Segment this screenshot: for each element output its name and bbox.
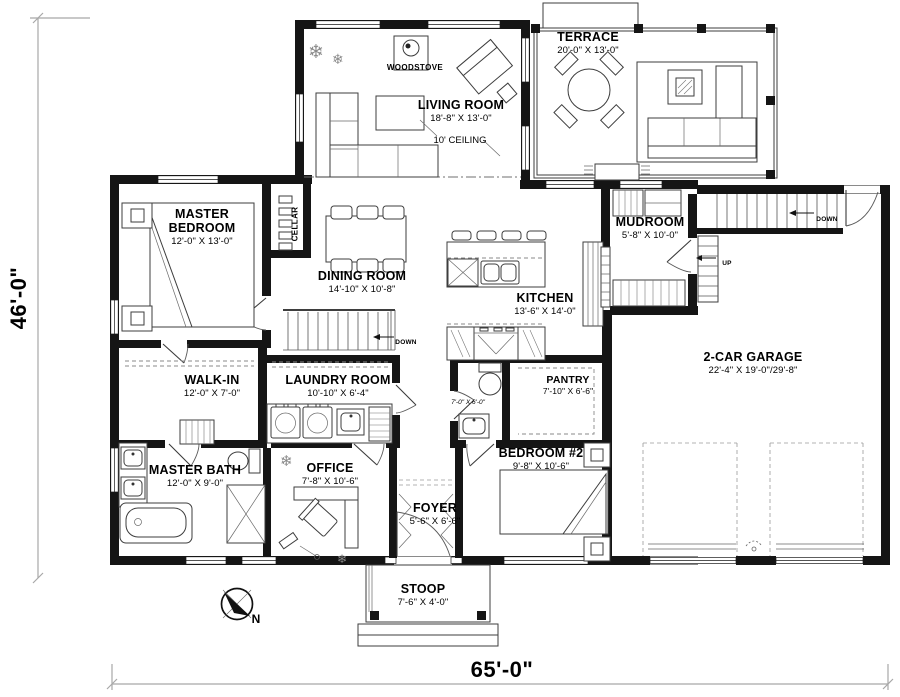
chimney (543, 3, 638, 28)
bath-sink (121, 477, 145, 499)
laundry-hatch (369, 407, 390, 441)
room-dims: 14'-10" X 10'-8" (318, 285, 406, 295)
office-furniture (279, 487, 358, 560)
room-name: FOYER (410, 502, 461, 516)
garage-side-door (846, 190, 878, 226)
label-down-garage: DOWN (816, 208, 837, 225)
room-dims: 12'-0" X 13'-0" (146, 237, 258, 247)
label-powder-room: 7'-0" X 6'-0" (451, 391, 485, 408)
room-dims: 13'-6" X 14'-0" (514, 307, 576, 317)
label-pantry: PANTRY 7'-10" X 6'-6" (543, 375, 593, 397)
coffee-table (376, 96, 424, 130)
room-dims: 7'-0" X 6'-0" (451, 399, 485, 406)
basement-stairs (283, 310, 395, 350)
tall-cabinets (583, 242, 603, 326)
room-dims: 7'-8" X 10'-6" (302, 477, 358, 487)
label-woodstove: WOODSTOVE (387, 64, 443, 73)
label-master-bedroom: MASTER BEDROOM 12'-0" X 13'-0" (146, 208, 258, 247)
foyer-opening-dashes (399, 480, 453, 485)
room-dims: 20'-0" X 13'-0" (557, 46, 619, 56)
laundry-door (396, 385, 416, 413)
terrace-furniture (554, 52, 757, 180)
mudroom-garage-door (667, 240, 691, 272)
range-counter (447, 324, 545, 360)
down-arrow (373, 334, 380, 340)
label-stoop: STOOP 7'-6" X 4'-0" (398, 583, 449, 608)
room-dims: 5'-8" X 10'-0" (616, 231, 685, 241)
label-ceiling-note: 10' CEILING (433, 130, 486, 147)
label-garage: 2-CAR GARAGE 22'-4" X 19'-0"/29'-8" (704, 351, 803, 376)
mudroom-up-stairs (696, 236, 718, 302)
down-arrow (789, 210, 796, 216)
label-living-room: LIVING ROOM 18'-8" X 13'-0" (418, 99, 504, 124)
room-name: CELLAR (292, 207, 301, 242)
laundry-sink (337, 409, 364, 435)
room-name: PANTRY (543, 375, 593, 386)
room-dims: 12'-0" X 7'-0" (184, 389, 240, 399)
room-name: MASTER BEDROOM (146, 208, 258, 235)
louver-closet (601, 247, 610, 307)
room-dims: 10'-10" X 6'-4" (285, 389, 390, 399)
closet-bench (180, 420, 214, 444)
room-dims: 7'-6" X 4'-0" (398, 598, 449, 608)
room-name: 2-CAR GARAGE (704, 351, 803, 365)
room-dims: 12'-0" X 9'-0" (149, 479, 241, 489)
plant-icon: ❄ (337, 552, 347, 566)
label-down-basement: DOWN (395, 331, 416, 348)
room-name: WOODSTOVE (387, 64, 443, 73)
plant-icon: ❄ (308, 42, 324, 63)
room-dims: 22'-4" X 19'-0"/29'-8" (704, 366, 803, 376)
powder-sink (459, 414, 489, 438)
keyboard (279, 533, 298, 549)
desk-return (345, 500, 358, 548)
outdoor-table (568, 69, 610, 111)
label-laundry-room: LAUNDRY ROOM 10'-10" X 6'-4" (285, 374, 390, 399)
label-up: UP (722, 252, 731, 269)
dining-furniture (326, 206, 406, 272)
dimension-width: 65'-0" (461, 658, 544, 682)
room-dims: 18'-8" X 13'-0" (418, 114, 504, 124)
bath-sink (121, 447, 145, 469)
dryer-icon (303, 404, 332, 438)
room-name: BEDROOM #2 (499, 447, 584, 461)
step (358, 635, 498, 646)
fire-table (668, 70, 702, 104)
compass-needle (224, 592, 250, 616)
room-name: MASTER BATH (149, 464, 241, 478)
washer-icon (271, 404, 300, 438)
label-foyer: FOYER 5'-6" X 6'-6" (410, 502, 461, 527)
kitchen-island (447, 242, 545, 287)
plant-icon: ❄ (332, 51, 344, 67)
garage-light (746, 541, 762, 546)
room-name: LAUNDRY ROOM (285, 374, 390, 388)
room-name: TERRACE (557, 31, 619, 45)
garage-markings (643, 443, 864, 556)
bedroom2-door (467, 444, 494, 466)
dining-table (326, 216, 406, 262)
room-name: KITCHEN (514, 292, 576, 306)
office-door (354, 444, 384, 465)
label-kitchen: KITCHEN 13'-6" X 14'-0" (514, 292, 576, 317)
room-dims: 9'-8" X 10'-6" (499, 462, 584, 472)
master-bath-fixtures (119, 443, 265, 543)
compass-rose (222, 589, 253, 620)
room-dims: 5'-6" X 6'-6" (410, 517, 461, 527)
label-dining-room: DINING ROOM 14'-10" X 10'-8" (318, 270, 406, 295)
step (358, 624, 498, 635)
label-north: N (252, 613, 261, 626)
label-bedroom-2: BEDROOM #2 9'-8" X 10'-6" (499, 447, 584, 472)
desk (294, 487, 358, 500)
label-walk-in: WALK-IN 12'-0" X 7'-0" (184, 374, 240, 399)
dimension-height: 46'-0" (7, 257, 31, 340)
range (474, 327, 518, 360)
label-mudroom: MUDROOM 5'-8" X 10'-0" (616, 216, 685, 241)
office-chair (299, 498, 340, 538)
room-name: MUDROOM (616, 216, 685, 230)
label-office: OFFICE 7'-8" X 10'-6" (302, 462, 358, 487)
shower (227, 485, 265, 543)
bathtub-icon (120, 503, 192, 543)
label-master-bath: MASTER BATH 12'-0" X 9'-0" (149, 464, 241, 489)
label-terrace: TERRACE 20'-0" X 13'-0" (557, 31, 619, 56)
mudroom-fittings (613, 190, 685, 306)
plant-icon: ❄ (280, 453, 293, 470)
room-name: LIVING ROOM (418, 99, 504, 113)
floor-plan: ❄ ❄ ❄ ❄ TERRACE 20'-0" X 13'-0" WOODSTOV… (0, 0, 900, 697)
room-name: DINING ROOM (318, 270, 406, 284)
room-dims: 7'-10" X 6'-6" (543, 387, 593, 396)
room-name: WALK-IN (184, 374, 240, 388)
bar-stools (452, 231, 546, 240)
room-name: STOOP (398, 583, 449, 597)
room-name: OFFICE (302, 462, 358, 476)
label-cellar: CELLAR (292, 207, 301, 242)
walk-in-door (163, 344, 188, 363)
